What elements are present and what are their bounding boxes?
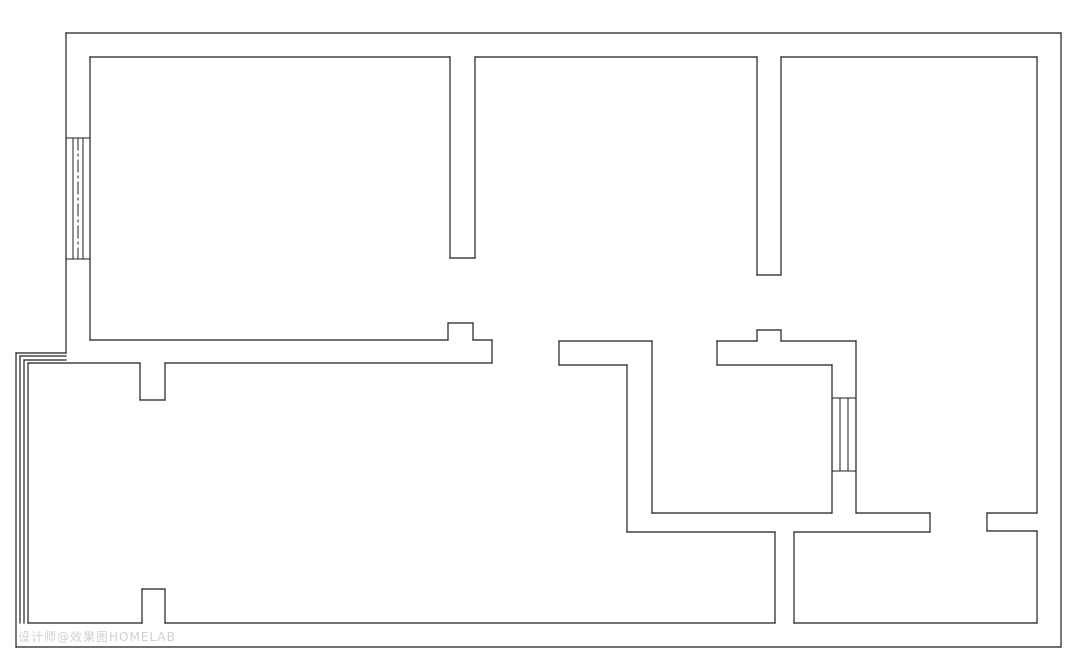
watermark-text: 设计师@效果图HOMELAB [18,628,176,645]
floor-plan-drawing [0,0,1080,665]
floor-plan-page: 设计师@效果图HOMELAB [0,0,1080,665]
